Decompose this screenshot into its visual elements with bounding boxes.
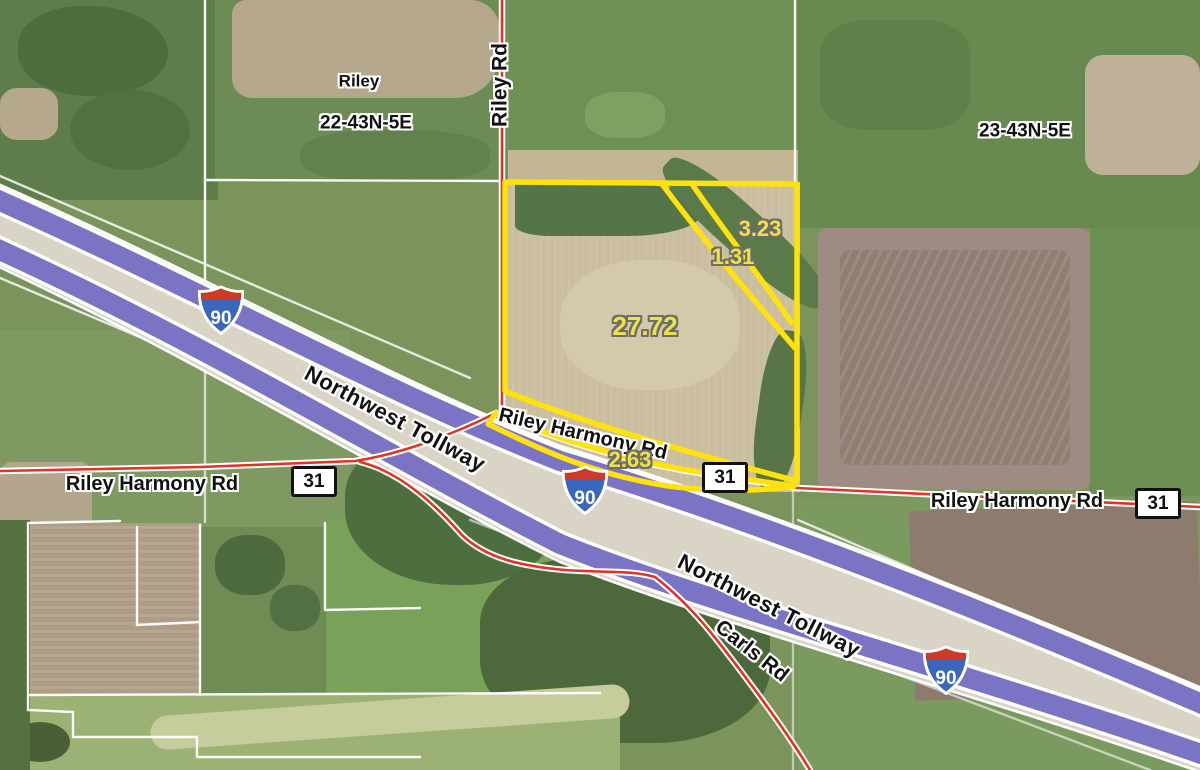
route-31-shield-east: 31 [1135,488,1181,519]
township-name-label: Riley [339,73,380,90]
riley-harmony-rd-label-west: Riley Harmony Rd [66,474,238,494]
acreage-label-2-63: 2.63 [609,449,652,471]
route-31-shield-middle: 31 [702,462,748,493]
interstate-number: 90 [935,668,956,689]
acreage-label-1-31: 1.31 [712,246,755,268]
interstate-90-shield-middle: 90 [561,465,609,515]
riley-harmony-rd-label-east: Riley Harmony Rd [931,491,1103,511]
acreage-label-27-72: 27.72 [612,313,677,339]
interstate-number: 90 [574,488,595,509]
riley-rd-label: Riley Rd [490,43,511,127]
interstate-90-shield-upper: 90 [197,285,245,335]
parcel-map[interactable]: Riley 22-43N-5E 23-43N-5E Riley Rd Riley… [0,0,1200,770]
interstate-90-shield-lower: 90 [922,645,970,695]
route-31-shield-west: 31 [291,466,337,497]
map-line-overlay [0,0,1200,770]
interstate-number: 90 [210,308,231,329]
section-label-22: 22-43N-5E [320,114,412,133]
acreage-label-3-23: 3.23 [739,218,782,240]
section-label-23: 23-43N-5E [979,122,1071,141]
